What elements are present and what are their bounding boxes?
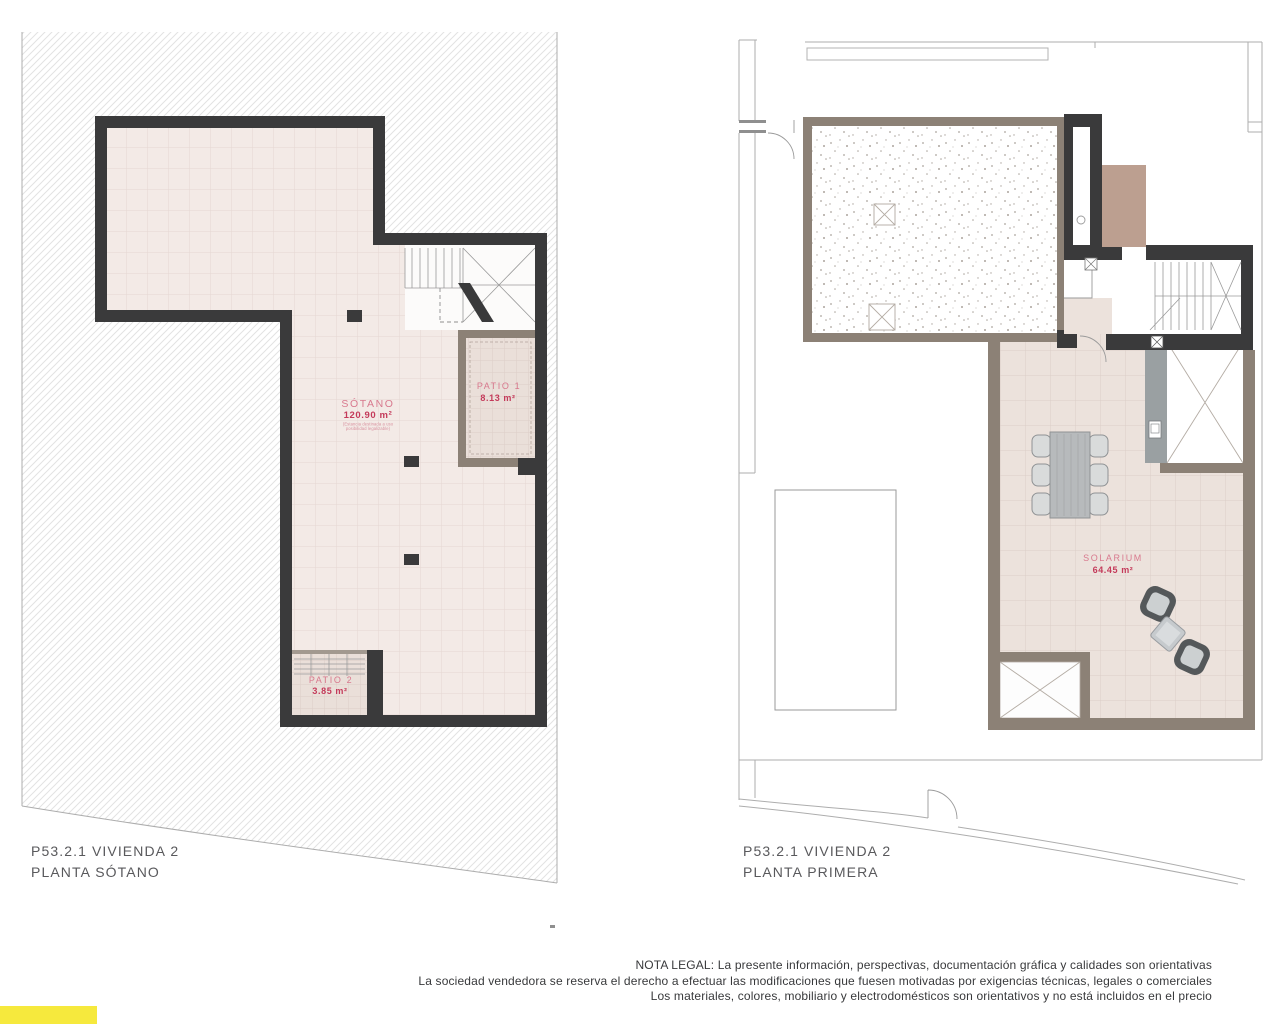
gravel-terrace <box>803 117 1066 342</box>
first-floor-title-line2: PLANTA PRIMERA <box>743 862 891 883</box>
room-label-solarium-area: 64.45 m² <box>1093 565 1134 575</box>
pool <box>775 490 896 710</box>
legal-note: NOTA LEGAL: La presente información, per… <box>418 958 1212 1005</box>
room-label-sotano-note: (Estancia destinada a uso posibilidad le… <box>343 423 393 432</box>
void-opening <box>1160 342 1255 473</box>
wall-column-x <box>1151 336 1163 348</box>
room-label-sotano-area: 120.90 m² <box>344 410 393 421</box>
dining-table <box>1050 432 1090 518</box>
legal-note-line1: NOTA LEGAL: La presente información, per… <box>418 958 1212 974</box>
room-label-sotano-name: SÓTANO <box>341 398 394 410</box>
skylight-2 <box>869 304 895 330</box>
site-gate-arc <box>928 790 957 819</box>
floorplan-sheet: SÓTANO 120.90 m² (Estancia destinada a u… <box>0 0 1280 1024</box>
stray-mark <box>550 925 555 928</box>
room-label-patio1-name: PATIO 1 <box>477 381 521 391</box>
basement-plan-title: P53.2.1 VIVIENDA 2 PLANTA SÓTANO <box>31 841 179 883</box>
first-floor-plan-drawing <box>739 40 1262 884</box>
basement-title-line2: PLANTA SÓTANO <box>31 862 179 883</box>
legal-note-line2: La sociedad vendedora se reserva el dere… <box>418 974 1212 990</box>
basement-plan-drawing <box>22 32 557 883</box>
basement-title-line1: P53.2.1 VIVIENDA 2 <box>31 841 179 862</box>
skylight-1 <box>874 204 895 225</box>
sotano-note-line2: posibilidad legalizable) <box>343 427 393 431</box>
first-floor-title-line1: P53.2.1 VIVIENDA 2 <box>743 841 891 862</box>
legal-note-line3: Los materiales, colores, mobiliario y el… <box>418 989 1212 1005</box>
tan-block <box>1102 165 1146 247</box>
kitchen-counter <box>1145 350 1167 463</box>
room-label-patio2-area: 3.85 m² <box>312 686 347 696</box>
room-label-patio2-name: PATIO 2 <box>309 675 353 685</box>
room-label-solarium-name: SOLARIUM <box>1083 553 1143 563</box>
accent-bar <box>0 1006 97 1024</box>
first-floor-plan-title: P53.2.1 VIVIENDA 2 PLANTA PRIMERA <box>743 841 891 883</box>
floorplan-drawing <box>0 0 1280 1024</box>
room-label-patio1-area: 8.13 m² <box>480 393 515 403</box>
solarium-skylight <box>988 652 1090 718</box>
dining-table-set <box>1032 432 1108 518</box>
patio1-column <box>518 458 537 475</box>
basement-stairs <box>405 245 535 330</box>
hall-column-x <box>1085 258 1097 270</box>
